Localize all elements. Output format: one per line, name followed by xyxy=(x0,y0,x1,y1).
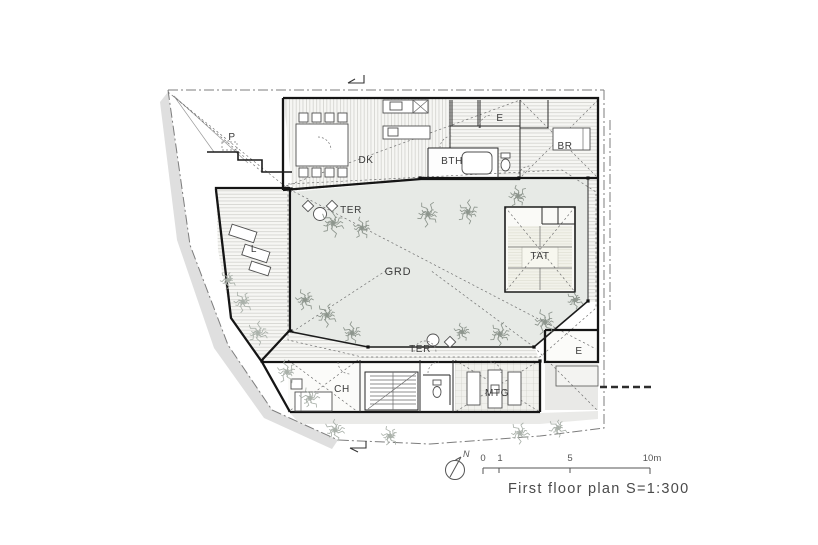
post-marker xyxy=(538,359,541,362)
scale-bar-line xyxy=(483,468,650,474)
toilet-lower xyxy=(433,380,441,398)
driveway-line-2 xyxy=(174,96,214,152)
scale-label-5: 5 xyxy=(567,453,572,464)
plan-caption: First floor plan S=1:300 xyxy=(508,481,690,497)
north-arrow: N xyxy=(446,449,471,480)
room-label-e-lower: E xyxy=(575,346,582,357)
toilet-upper xyxy=(501,153,510,171)
staircase xyxy=(365,372,418,410)
post-marker xyxy=(366,345,369,348)
room-label-tat: TAT xyxy=(530,251,549,262)
room-label-mtg: MTG xyxy=(485,388,509,399)
post-marker xyxy=(532,345,535,348)
bathtub xyxy=(462,152,492,174)
north-label: N xyxy=(463,449,470,459)
room-label-ter-lower: TER xyxy=(409,344,431,355)
section-mark-top xyxy=(348,75,364,83)
post-marker xyxy=(289,187,292,190)
room-label-l: L xyxy=(251,244,257,255)
post-marker xyxy=(586,176,589,179)
north-needle xyxy=(450,457,461,477)
porch-lower xyxy=(556,366,598,386)
scale-label-0: 0 xyxy=(480,453,485,464)
room-label-br: BR xyxy=(557,141,572,152)
floor-corridor-right xyxy=(588,178,598,302)
scale-label-1: 1 xyxy=(497,453,502,464)
tree-icon xyxy=(511,423,530,445)
scale-bar: 0 1 5 10m xyxy=(480,453,661,474)
post-marker xyxy=(586,299,589,302)
room-label-ter-upper: TER xyxy=(340,205,362,216)
floor-plan-svg: P DK E BTH BR TER L GRD TAT TER CH MTG E… xyxy=(0,0,818,545)
room-label-dk: DK xyxy=(358,155,373,166)
section-mark-bottom xyxy=(350,441,366,452)
post-marker xyxy=(517,176,520,179)
scale-label-10m: 10m xyxy=(643,453,662,464)
parking-step-wall xyxy=(207,152,292,172)
post-marker xyxy=(289,329,292,332)
post-marker xyxy=(260,359,263,362)
room-label-grd: GRD xyxy=(385,266,412,278)
post-marker xyxy=(418,176,421,179)
room-label-p: P xyxy=(228,132,235,143)
room-label-ch: CH xyxy=(334,384,350,395)
room-label-e-upper: E xyxy=(496,113,503,124)
floor-plan-page: P DK E BTH BR TER L GRD TAT TER CH MTG E… xyxy=(0,0,818,545)
room-label-bth: BTH xyxy=(441,156,463,167)
floor-entrance-lower xyxy=(545,330,598,362)
north-circle xyxy=(446,461,465,480)
